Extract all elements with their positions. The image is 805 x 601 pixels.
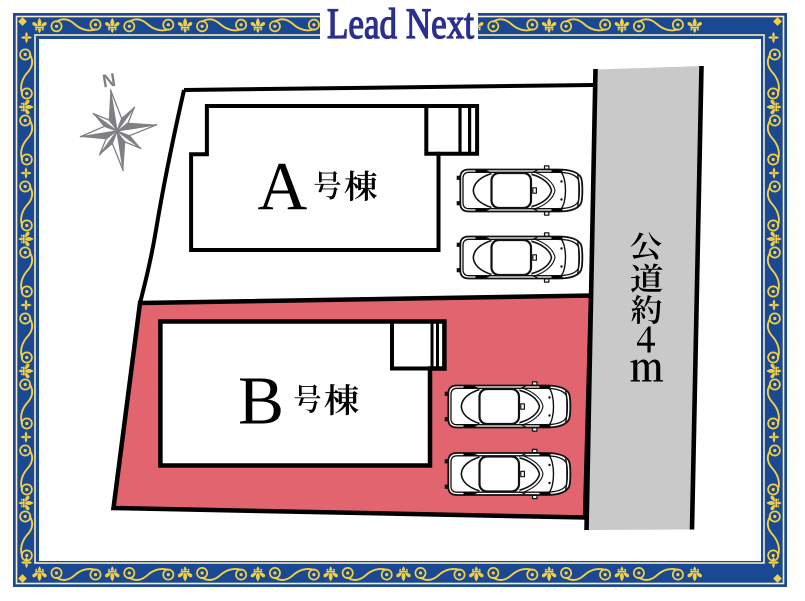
svg-text:B: B <box>238 363 284 439</box>
svg-text:Lead Next: Lead Next <box>327 1 474 48</box>
svg-text:A: A <box>258 148 308 224</box>
svg-text:N: N <box>101 69 117 92</box>
